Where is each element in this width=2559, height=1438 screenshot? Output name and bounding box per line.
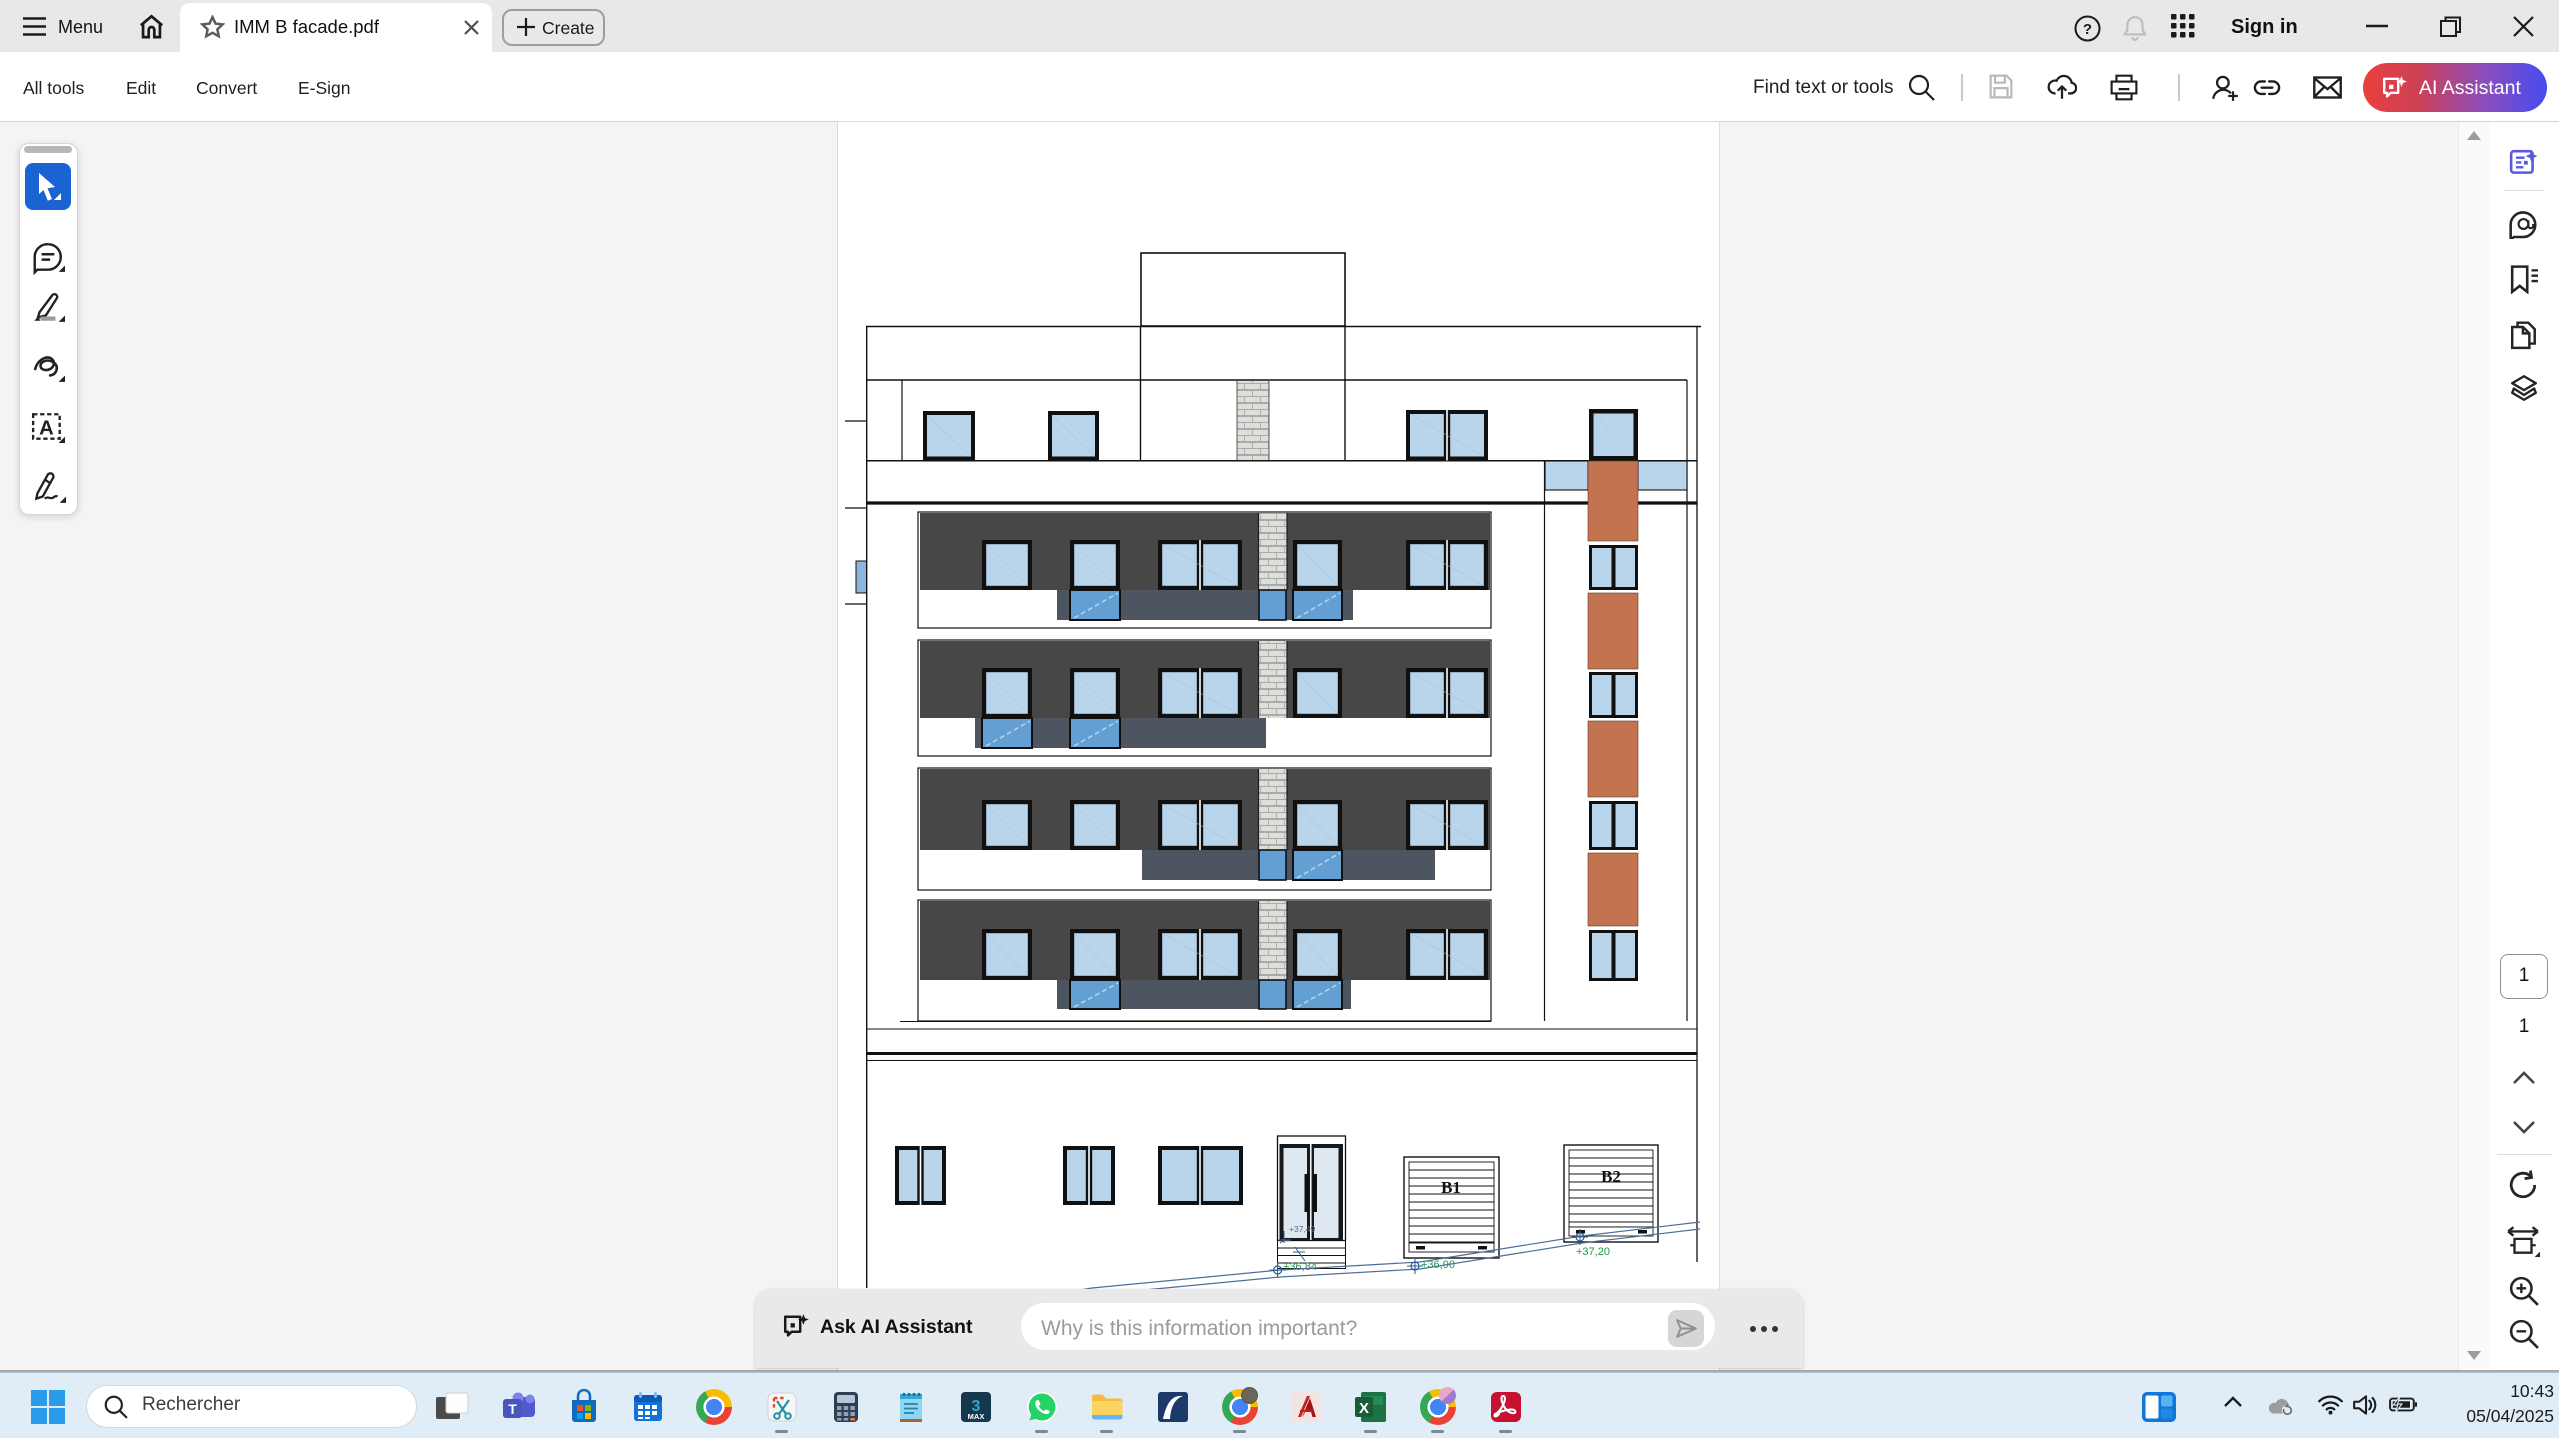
svg-text:+36,84: +36,84	[1283, 1261, 1317, 1273]
svg-text:T: T	[508, 1401, 517, 1417]
svg-text:B1: B1	[1441, 1178, 1461, 1197]
svg-text:+37,49: +37,49	[1289, 1224, 1316, 1234]
svg-text:?: ?	[2083, 21, 2092, 38]
svg-text:X: X	[1359, 1400, 1369, 1417]
svg-text:B2: B2	[1601, 1167, 1621, 1186]
svg-text:+37,20: +37,20	[1576, 1246, 1610, 1258]
svg-text:A: A	[39, 417, 54, 439]
svg-text:MAX: MAX	[968, 1412, 985, 1421]
